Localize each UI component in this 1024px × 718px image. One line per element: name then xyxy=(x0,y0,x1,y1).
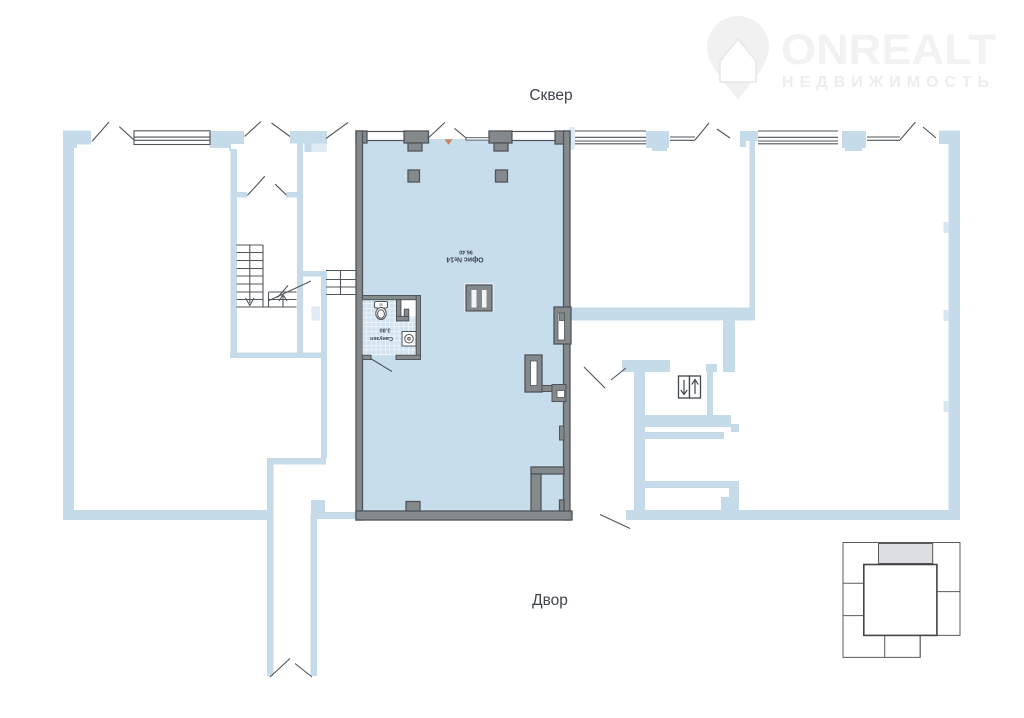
svg-text:3.80: 3.80 xyxy=(380,327,391,333)
svg-text:Сквер: Сквер xyxy=(529,87,572,104)
svg-text:НЕДВИЖИМОСТЬ: НЕДВИЖИМОСТЬ xyxy=(782,74,995,91)
svg-text:Санузел: Санузел xyxy=(370,335,393,341)
svg-text:Двор: Двор xyxy=(532,592,568,609)
svg-text:ONREALT: ONREALT xyxy=(781,26,996,74)
svg-text:Офис №14: Офис №14 xyxy=(446,255,483,263)
svg-text:96.40: 96.40 xyxy=(459,248,473,254)
